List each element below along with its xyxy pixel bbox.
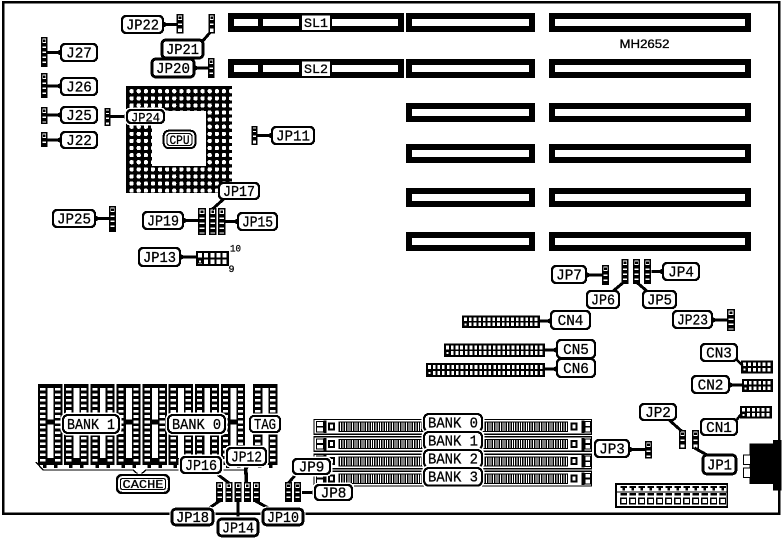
svg-text:MH2652: MH2652 (620, 39, 670, 51)
svg-text:JP2: JP2 (645, 405, 671, 422)
svg-text:JP5: JP5 (647, 292, 672, 309)
svg-text:CN1: CN1 (706, 420, 732, 437)
svg-text:JP10: JP10 (267, 510, 299, 527)
svg-text:CACHE: CACHE (123, 478, 164, 492)
svg-text:TAG: TAG (254, 417, 276, 434)
svg-text:CN2: CN2 (698, 377, 724, 394)
svg-text:JP25: JP25 (57, 211, 91, 228)
svg-text:JP6: JP6 (591, 292, 615, 309)
svg-text:JP17: JP17 (223, 184, 255, 201)
svg-text:CN6: CN6 (563, 361, 589, 378)
svg-text:CN3: CN3 (706, 345, 732, 362)
svg-text:CPU: CPU (170, 134, 190, 148)
svg-text:JP7: JP7 (556, 267, 582, 284)
svg-text:JP9: JP9 (299, 459, 325, 476)
svg-text:JP18: JP18 (176, 510, 209, 527)
svg-text:JP13: JP13 (143, 250, 176, 267)
svg-text:JP23: JP23 (677, 312, 708, 329)
svg-text:BANK 1: BANK 1 (67, 417, 115, 434)
svg-text:J27: J27 (66, 45, 92, 62)
svg-text:JP16: JP16 (185, 458, 217, 475)
svg-text:CN5: CN5 (563, 342, 589, 359)
svg-text:JP21: JP21 (166, 42, 199, 59)
svg-text:BANK 0: BANK 0 (172, 417, 221, 434)
svg-text:JP24: JP24 (131, 110, 160, 125)
svg-text:10: 10 (230, 244, 241, 256)
svg-text:SL1: SL1 (304, 16, 328, 31)
svg-text:SL2: SL2 (304, 62, 328, 77)
svg-text:J26: J26 (66, 79, 92, 96)
svg-text:BANK 3: BANK 3 (428, 470, 478, 487)
svg-text:J22: J22 (66, 133, 92, 150)
svg-text:J25: J25 (66, 108, 92, 125)
svg-text:JP4: JP4 (668, 264, 694, 281)
svg-text:JP20: JP20 (156, 61, 190, 78)
svg-text:JP1: JP1 (707, 457, 732, 474)
svg-text:JP8: JP8 (321, 485, 347, 502)
svg-text:JP19: JP19 (147, 213, 179, 230)
svg-text:JP22: JP22 (126, 17, 159, 34)
svg-text:JP14: JP14 (222, 520, 254, 537)
svg-text:JP15: JP15 (242, 214, 273, 231)
svg-text:JP3: JP3 (599, 441, 625, 458)
svg-text:CN4: CN4 (558, 313, 584, 330)
svg-text:JP12: JP12 (231, 449, 262, 466)
svg-text:JP11: JP11 (276, 128, 310, 145)
svg-text:9: 9 (229, 264, 235, 276)
